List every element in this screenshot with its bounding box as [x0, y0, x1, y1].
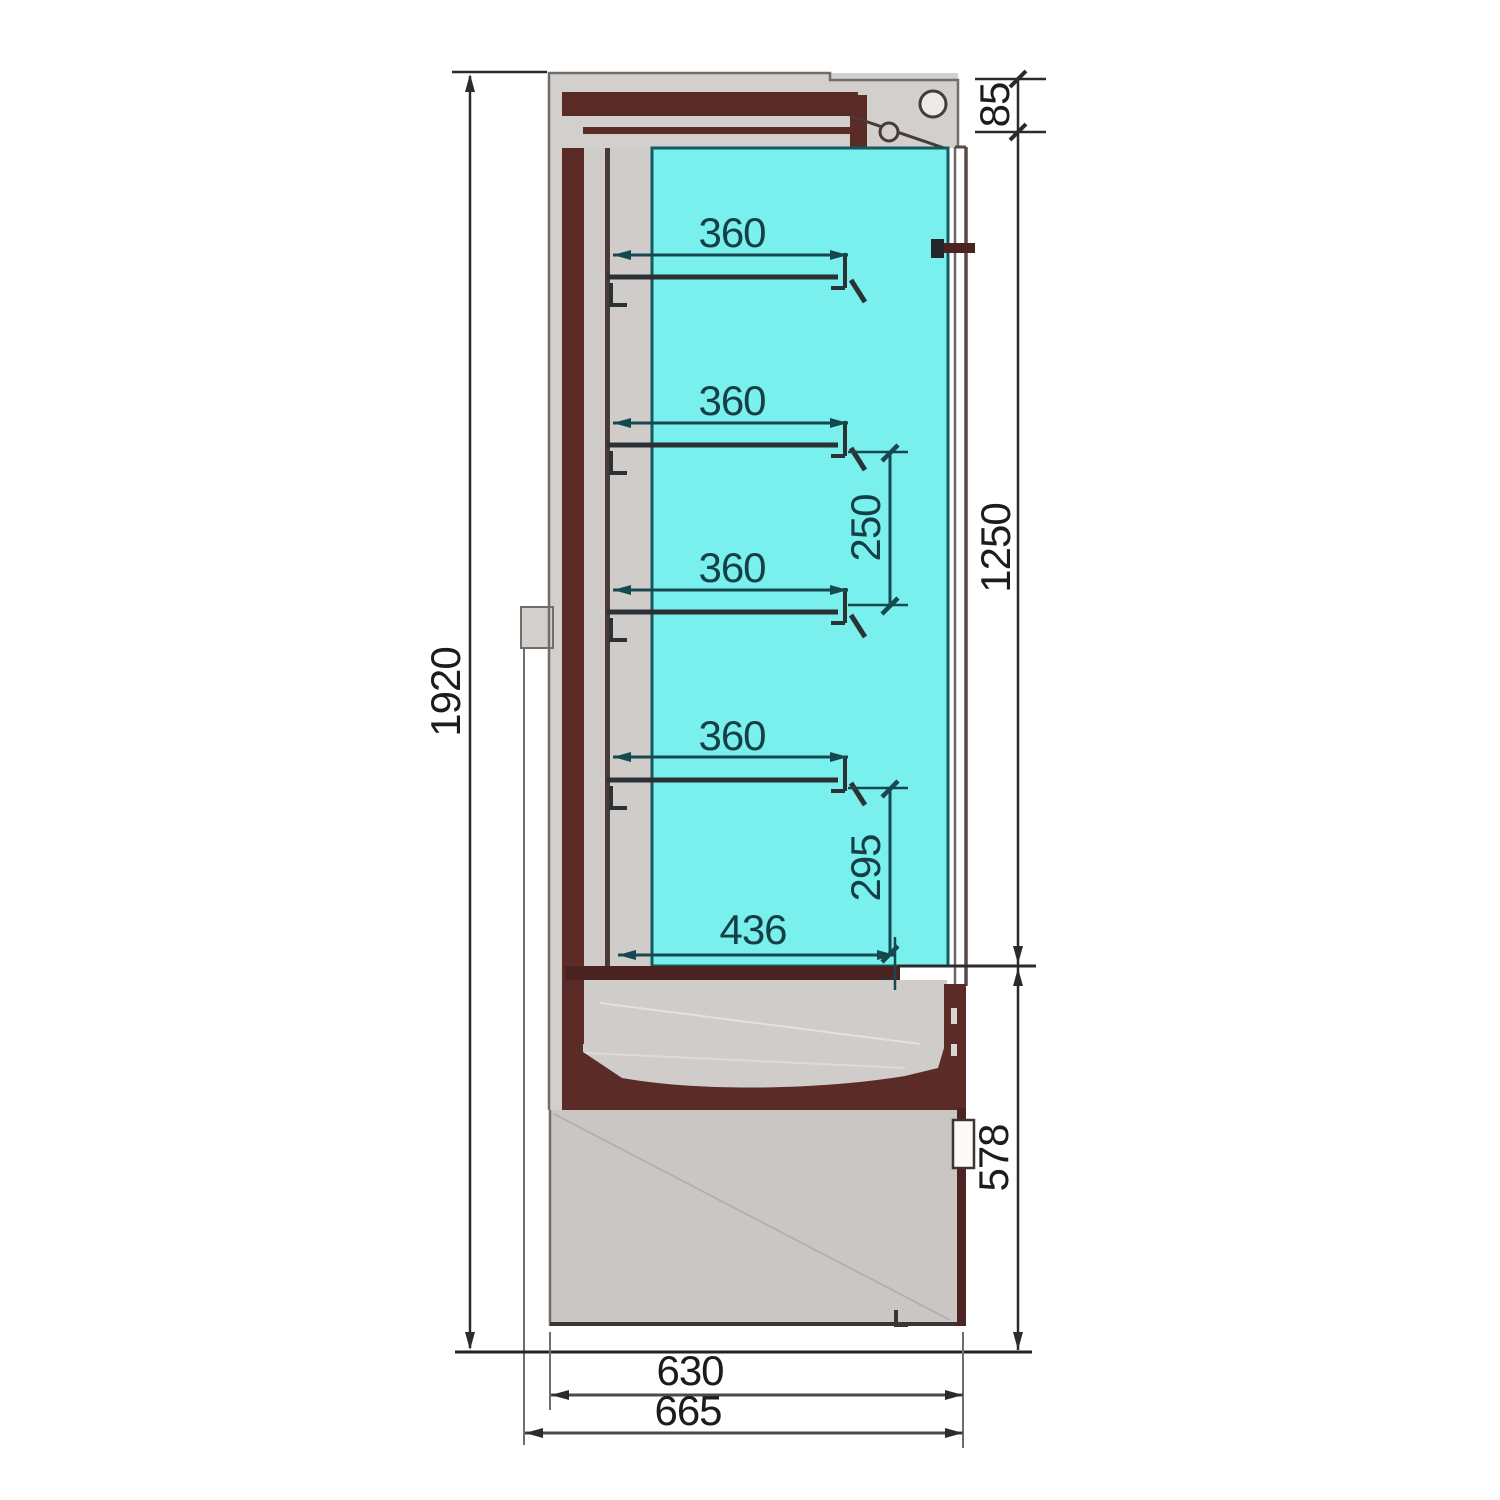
- dim-label-shelf-depth-3: 360: [698, 547, 765, 589]
- machine-base: [550, 1110, 965, 1326]
- dim-label-base-height: 578: [973, 1124, 1015, 1191]
- top-canopy: [549, 73, 958, 149]
- dim-label-overall-height: 1920: [425, 647, 467, 736]
- dim-label-shelf-spacing: 250: [845, 494, 887, 561]
- canopy-duct-circle: [880, 123, 898, 141]
- dim-label-bottom-shelf-spacing: 295: [845, 834, 887, 901]
- dim-label-shelf-depth-2: 360: [698, 380, 765, 422]
- dim-label-base-shelf-depth: 436: [719, 909, 786, 951]
- dim-label-shelf-depth-4: 360: [698, 715, 765, 757]
- canopy-lamp-circle: [920, 91, 946, 117]
- dim-label-overall-depth: 665: [654, 1390, 721, 1432]
- base-section: [550, 980, 974, 1326]
- dim-label-canopy-height: 85: [974, 83, 1016, 128]
- interior-space: [652, 148, 948, 966]
- cabinet-cross-section-drawing: 1920 85 1250 578 360 360 360 360 250 295…: [0, 0, 1500, 1500]
- dim-label-shelf-depth-1: 360: [698, 212, 765, 254]
- dim-label-body-depth: 630: [656, 1350, 723, 1392]
- dim-label-opening-height: 1250: [975, 503, 1017, 592]
